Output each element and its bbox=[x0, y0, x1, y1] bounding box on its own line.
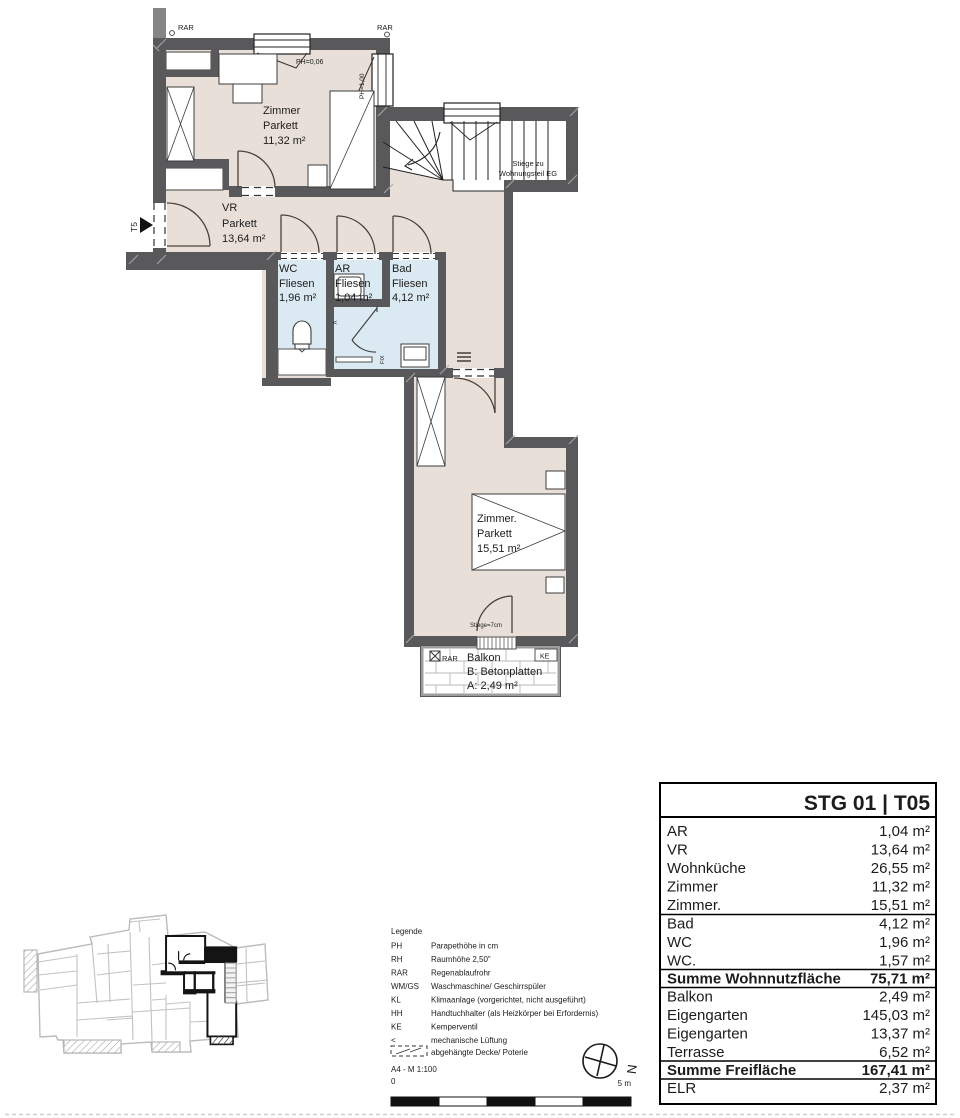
svg-text:15,51 m²: 15,51 m² bbox=[871, 897, 930, 914]
svg-text:1,04 m²: 1,04 m² bbox=[335, 292, 373, 304]
svg-text:1,96 m²: 1,96 m² bbox=[279, 292, 317, 304]
svg-text:Legende: Legende bbox=[391, 927, 423, 936]
svg-text:145,03 m²: 145,03 m² bbox=[862, 1007, 930, 1024]
svg-text:Raumhöhe 2,50": Raumhöhe 2,50" bbox=[431, 955, 491, 964]
svg-text:Bad: Bad bbox=[392, 263, 412, 275]
svg-text:13,64 m²: 13,64 m² bbox=[871, 842, 930, 859]
svg-text:Stiege=7cm: Stiege=7cm bbox=[470, 623, 502, 629]
svg-text:Klimaanlage (vorgerichtet, nic: Klimaanlage (vorgerichtet, nicht ausgefü… bbox=[431, 996, 586, 1005]
svg-text:FIX: FIX bbox=[380, 355, 386, 364]
svg-text:STG 01 | T05: STG 01 | T05 bbox=[804, 792, 930, 815]
svg-text:4,12 m²: 4,12 m² bbox=[392, 292, 430, 304]
svg-text:WC.: WC. bbox=[667, 953, 696, 970]
svg-text:1,04 m²: 1,04 m² bbox=[879, 823, 930, 840]
svg-text:Eigengarten: Eigengarten bbox=[667, 1026, 748, 1043]
svg-text:<: < bbox=[333, 320, 337, 327]
svg-text:AR: AR bbox=[667, 823, 688, 840]
svg-text:75,71 m²: 75,71 m² bbox=[870, 971, 930, 988]
svg-text:Fliesen: Fliesen bbox=[392, 278, 427, 290]
svg-text:KE: KE bbox=[540, 654, 550, 661]
svg-text:Balkon: Balkon bbox=[467, 652, 501, 664]
svg-text:Zimmer: Zimmer bbox=[263, 105, 301, 117]
svg-text:2,37 m²: 2,37 m² bbox=[879, 1080, 930, 1097]
svg-text:ELR: ELR bbox=[667, 1080, 696, 1097]
svg-text:13,64 m²: 13,64 m² bbox=[222, 233, 266, 245]
svg-text:AR: AR bbox=[335, 263, 350, 275]
svg-text:Wohnküche: Wohnküche bbox=[667, 860, 746, 877]
svg-text:Summe Wohnnutzfläche: Summe Wohnnutzfläche bbox=[667, 971, 841, 988]
svg-text:5 m: 5 m bbox=[618, 1079, 632, 1088]
svg-text:RAR: RAR bbox=[377, 23, 393, 32]
svg-text:1,96 m²: 1,96 m² bbox=[879, 934, 930, 951]
svg-text:Handtuchhalter (als Heizkörper: Handtuchhalter (als Heizkörper bei Erfor… bbox=[431, 1009, 599, 1018]
svg-text:KE: KE bbox=[391, 1023, 402, 1032]
svg-text:Fliesen: Fliesen bbox=[335, 278, 370, 290]
svg-text:13,37 m²: 13,37 m² bbox=[871, 1026, 930, 1043]
svg-text:Kemperventil: Kemperventil bbox=[431, 1023, 478, 1032]
svg-text:Zimmer: Zimmer bbox=[667, 879, 718, 896]
svg-text:T5: T5 bbox=[129, 222, 139, 232]
svg-text:Parapethöhe in cm: Parapethöhe in cm bbox=[431, 942, 498, 951]
svg-text:1,57 m²: 1,57 m² bbox=[879, 953, 930, 970]
svg-text:<: < bbox=[391, 1036, 396, 1045]
svg-text:15,51 m²: 15,51 m² bbox=[477, 543, 521, 555]
svg-text:Summe Freifläche: Summe Freifläche bbox=[667, 1062, 796, 1079]
svg-text:2,49 m²: 2,49 m² bbox=[879, 989, 930, 1006]
svg-text:abgehängte Decke/ Poterie: abgehängte Decke/ Poterie bbox=[431, 1048, 529, 1057]
svg-text:KL: KL bbox=[391, 996, 401, 1005]
svg-text:Parkett: Parkett bbox=[477, 528, 512, 540]
svg-text:mechanische Lüftung: mechanische Lüftung bbox=[431, 1036, 507, 1045]
svg-text:RAR: RAR bbox=[442, 654, 458, 663]
svg-text:VR: VR bbox=[222, 202, 237, 214]
svg-text:Fliesen: Fliesen bbox=[279, 278, 314, 290]
svg-text:WC: WC bbox=[279, 263, 297, 275]
svg-text:Wohnungsteil EG: Wohnungsteil EG bbox=[499, 169, 557, 178]
svg-text:Stiege zu: Stiege zu bbox=[512, 159, 543, 168]
svg-text:PH=1,00: PH=1,00 bbox=[359, 73, 366, 99]
svg-text:VR: VR bbox=[667, 842, 688, 859]
svg-text:Regenablaufrohr: Regenablaufrohr bbox=[431, 969, 491, 978]
svg-text:A4 - M 1:100: A4 - M 1:100 bbox=[391, 1065, 437, 1074]
svg-text:11,32 m²: 11,32 m² bbox=[872, 879, 930, 896]
svg-text:RAR: RAR bbox=[391, 969, 408, 978]
svg-text:6,52 m²: 6,52 m² bbox=[879, 1044, 930, 1061]
svg-text:26,55 m²: 26,55 m² bbox=[871, 860, 930, 877]
svg-text:Eigengarten: Eigengarten bbox=[667, 1007, 748, 1024]
svg-text:Terrasse: Terrasse bbox=[667, 1044, 725, 1061]
svg-text:WC: WC bbox=[667, 934, 692, 951]
svg-text:11,32 m²: 11,32 m² bbox=[263, 135, 306, 147]
svg-text:167,41 m²: 167,41 m² bbox=[862, 1062, 930, 1079]
svg-text:4,12 m²: 4,12 m² bbox=[879, 916, 930, 933]
svg-text:RH: RH bbox=[391, 955, 403, 964]
svg-text:Zimmer.: Zimmer. bbox=[667, 897, 721, 914]
svg-text:N: N bbox=[624, 1064, 640, 1075]
svg-text:B: Betonplatten: B: Betonplatten bbox=[467, 666, 542, 678]
svg-text:PH=0,06: PH=0,06 bbox=[296, 59, 324, 66]
svg-text:Bad: Bad bbox=[667, 916, 694, 933]
svg-text:Waschmaschine/ Geschirrspüler: Waschmaschine/ Geschirrspüler bbox=[431, 982, 546, 991]
svg-text:Zimmer.: Zimmer. bbox=[477, 513, 517, 525]
svg-text:WM/GS: WM/GS bbox=[391, 982, 419, 991]
svg-text:Parkett: Parkett bbox=[263, 120, 298, 132]
svg-text:0: 0 bbox=[391, 1077, 396, 1086]
svg-text:PH: PH bbox=[391, 942, 402, 951]
svg-text:A: 2,49 m²: A: 2,49 m² bbox=[467, 680, 518, 692]
svg-text:HH: HH bbox=[391, 1009, 403, 1018]
svg-text:RAR: RAR bbox=[178, 23, 194, 32]
svg-text:Parkett: Parkett bbox=[222, 218, 257, 230]
svg-text:Balkon: Balkon bbox=[667, 989, 713, 1006]
